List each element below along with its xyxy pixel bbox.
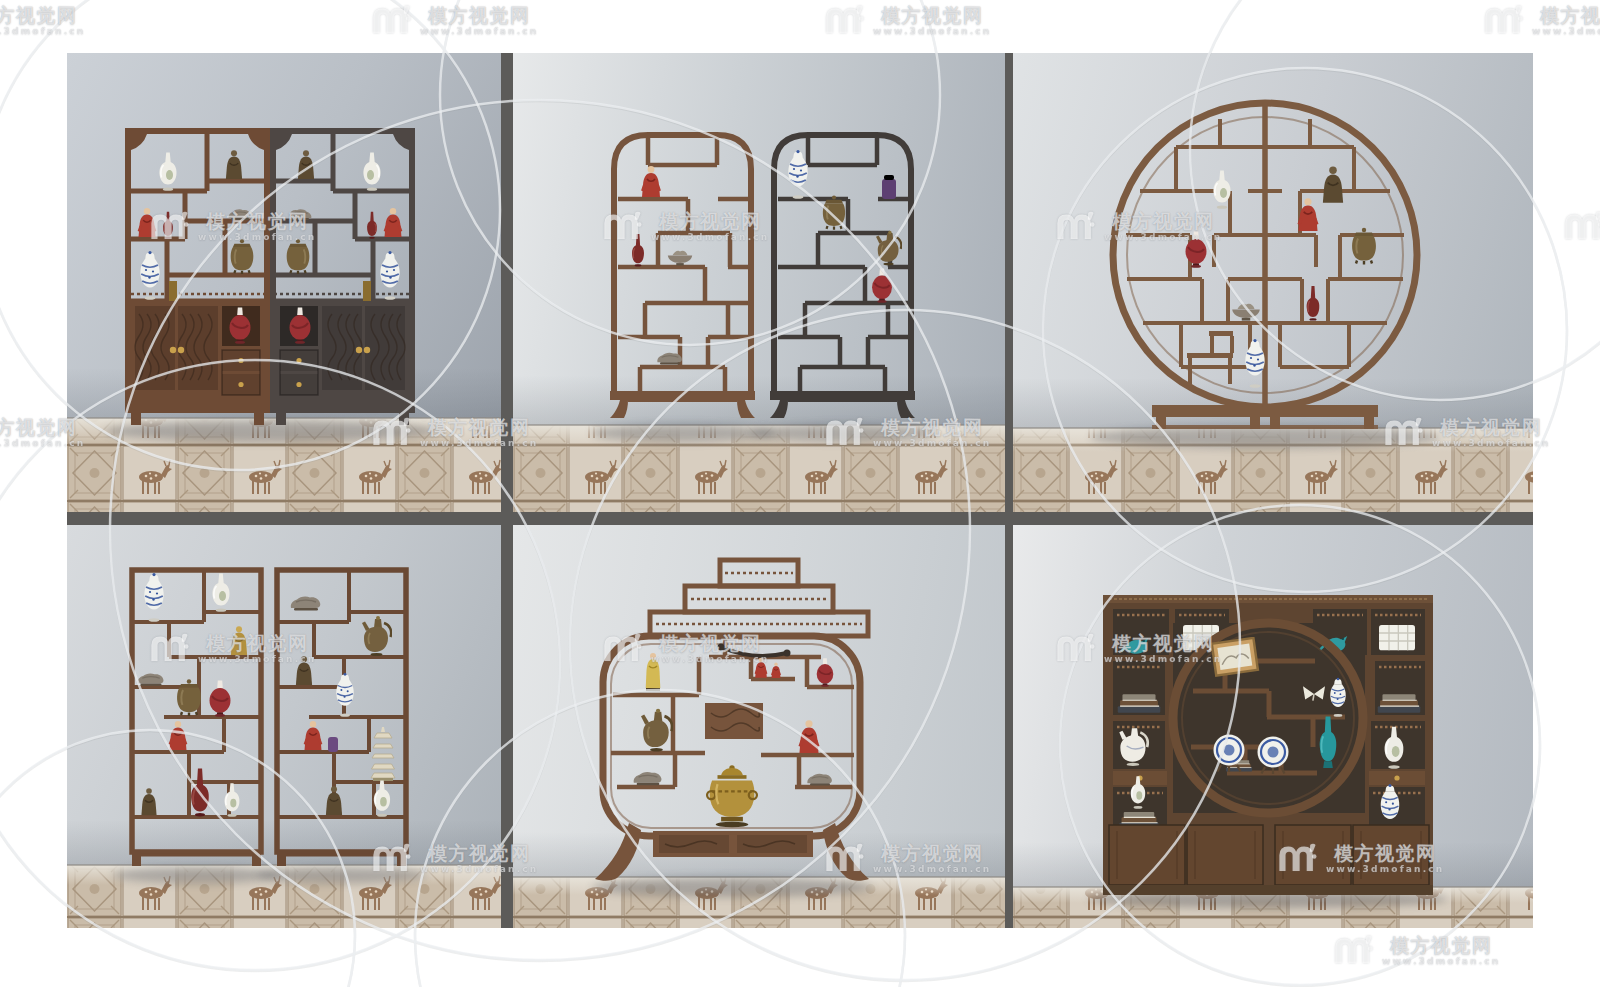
watermark-brand: 模方视觉网 bbox=[428, 4, 531, 26]
watermark-url: www.3dmofan.cn bbox=[0, 26, 85, 37]
watermark-url: www.3dmofan.cn bbox=[1382, 956, 1500, 967]
watermark: 模方视觉网 www.3dmofan.cn bbox=[1480, 4, 1600, 37]
render-bottom-center bbox=[513, 525, 1005, 928]
watermark-url: www.3dmofan.cn bbox=[420, 26, 538, 37]
render-top-right bbox=[1013, 53, 1533, 512]
collage-board bbox=[67, 53, 1533, 928]
watermark-brand: 模方视觉网 bbox=[0, 4, 77, 26]
watermark: 模方视觉网 www.3dmofan.cn bbox=[1330, 934, 1500, 967]
watermark: 模方视觉网 www.3dmofan.cn bbox=[1560, 210, 1600, 243]
mf-logo-icon bbox=[1560, 210, 1600, 240]
mf-logo-icon bbox=[821, 4, 867, 34]
watermark-url: www.3dmofan.cn bbox=[1532, 26, 1600, 37]
render-bottom-left bbox=[67, 525, 501, 928]
render-bottom-right bbox=[1013, 525, 1533, 928]
watermark: 模方视觉网 www.3dmofan.cn bbox=[368, 4, 538, 37]
watermark-brand: 模方视觉网 bbox=[0, 416, 77, 438]
watermark-url: www.3dmofan.cn bbox=[873, 26, 991, 37]
mf-logo-icon bbox=[1330, 934, 1376, 964]
render-top-left bbox=[67, 53, 501, 512]
mf-logo-icon bbox=[368, 4, 414, 34]
watermark-brand: 模方视觉网 bbox=[881, 4, 984, 26]
watermark: 模方视觉网 www.3dmofan.cn bbox=[821, 4, 991, 37]
watermark-brand: 模方视觉网 bbox=[1540, 4, 1600, 26]
furniture-collage: 模方视觉网 www.3dmofan.cn 模方视觉网 www.3dmofan.c… bbox=[0, 0, 1600, 987]
watermark-brand: 模方视觉网 bbox=[1390, 934, 1493, 956]
mf-logo-icon bbox=[1480, 4, 1526, 34]
render-top-center bbox=[513, 53, 1005, 512]
watermark: 模方视觉网 www.3dmofan.cn bbox=[0, 4, 85, 37]
